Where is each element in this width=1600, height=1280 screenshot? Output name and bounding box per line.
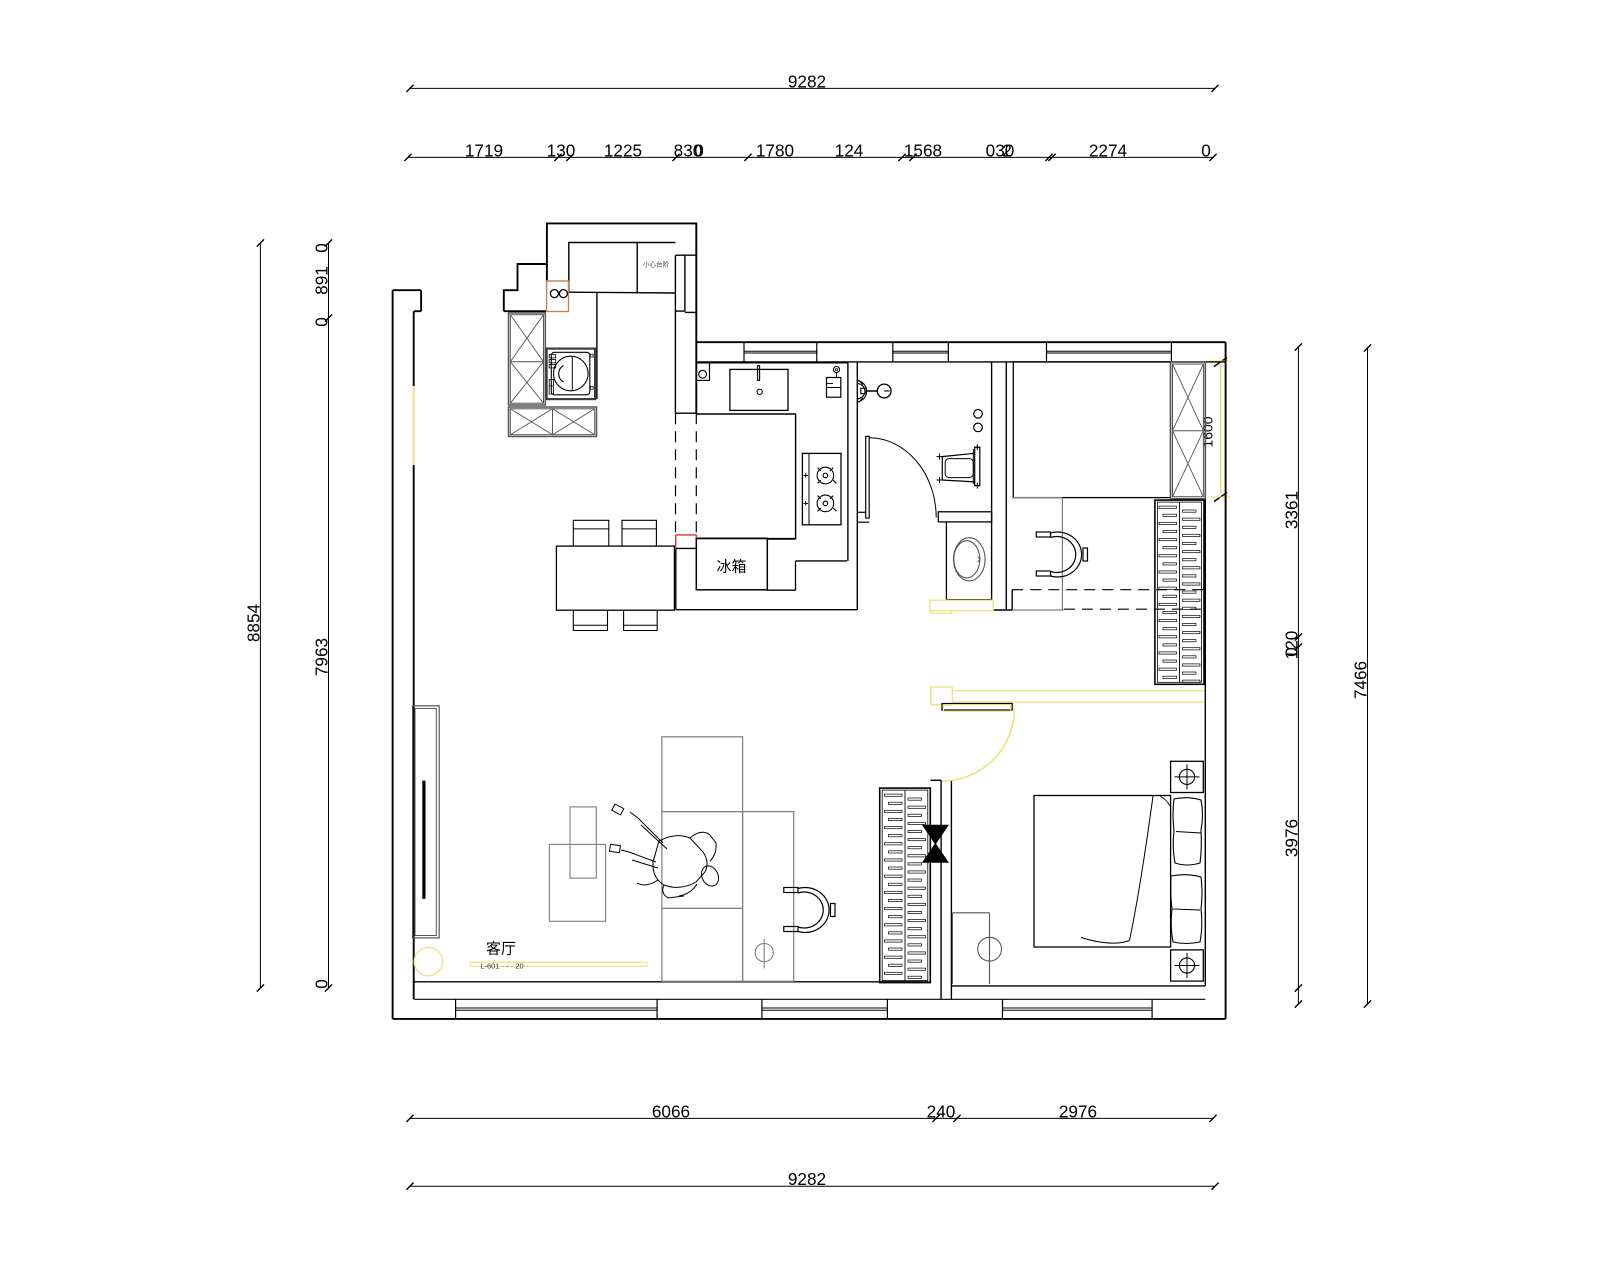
svg-text:1780: 1780 [756, 141, 794, 161]
svg-text:2: 2 [1002, 141, 1012, 161]
svg-text:1600: 1600 [1199, 416, 1215, 447]
svg-text:1225: 1225 [604, 141, 642, 161]
svg-text:240: 240 [927, 1101, 956, 1121]
svg-text:9282: 9282 [788, 1169, 826, 1189]
svg-text:7963: 7963 [311, 638, 331, 676]
svg-text:9282: 9282 [788, 72, 826, 92]
svg-text:3976: 3976 [1281, 819, 1301, 857]
svg-text:0: 0 [1201, 141, 1211, 161]
svg-text:1568: 1568 [904, 141, 942, 161]
svg-text:L-601 · - · 20: L-601 · - · 20 [480, 962, 523, 971]
svg-text:8854: 8854 [243, 603, 263, 642]
svg-text:冰箱: 冰箱 [716, 559, 746, 576]
svg-text:0: 0 [311, 317, 331, 327]
svg-text:2976: 2976 [1059, 1101, 1097, 1121]
svg-text:2274: 2274 [1089, 141, 1128, 161]
svg-text:0: 0 [694, 141, 704, 161]
svg-text:0: 0 [311, 979, 331, 989]
svg-text:0: 0 [1281, 647, 1301, 657]
svg-text:7466: 7466 [1351, 661, 1371, 699]
svg-text:1719: 1719 [465, 141, 503, 161]
svg-text:6066: 6066 [652, 1101, 690, 1121]
svg-text:124: 124 [835, 141, 864, 161]
svg-text:0: 0 [311, 243, 331, 253]
svg-text:891: 891 [311, 266, 331, 295]
svg-text:小心台阶: 小心台阶 [643, 260, 670, 269]
svg-text:3361: 3361 [1281, 491, 1301, 529]
svg-text:130: 130 [547, 141, 576, 161]
svg-text:客厅: 客厅 [486, 941, 516, 958]
